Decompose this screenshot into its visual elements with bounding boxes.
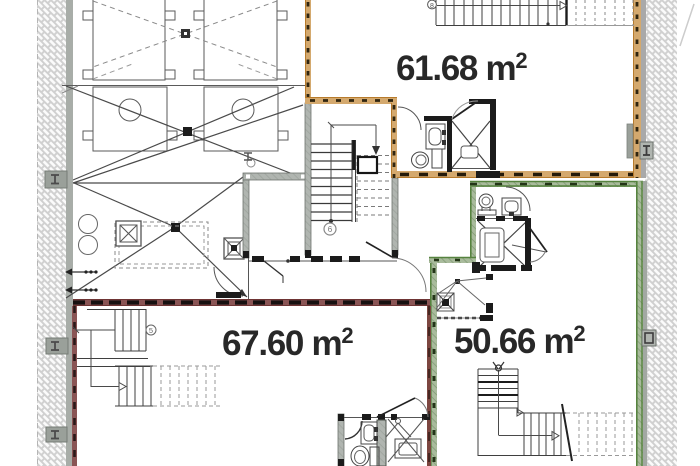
svg-text:5: 5 — [149, 326, 153, 335]
svg-text:67.60 m2: 67.60 m2 — [222, 323, 353, 363]
svg-text:61.68 m2: 61.68 m2 — [396, 48, 527, 88]
svg-text:6: 6 — [328, 225, 333, 234]
svg-text:8: 8 — [430, 3, 434, 10]
svg-text:50.66 m2: 50.66 m2 — [454, 321, 585, 361]
